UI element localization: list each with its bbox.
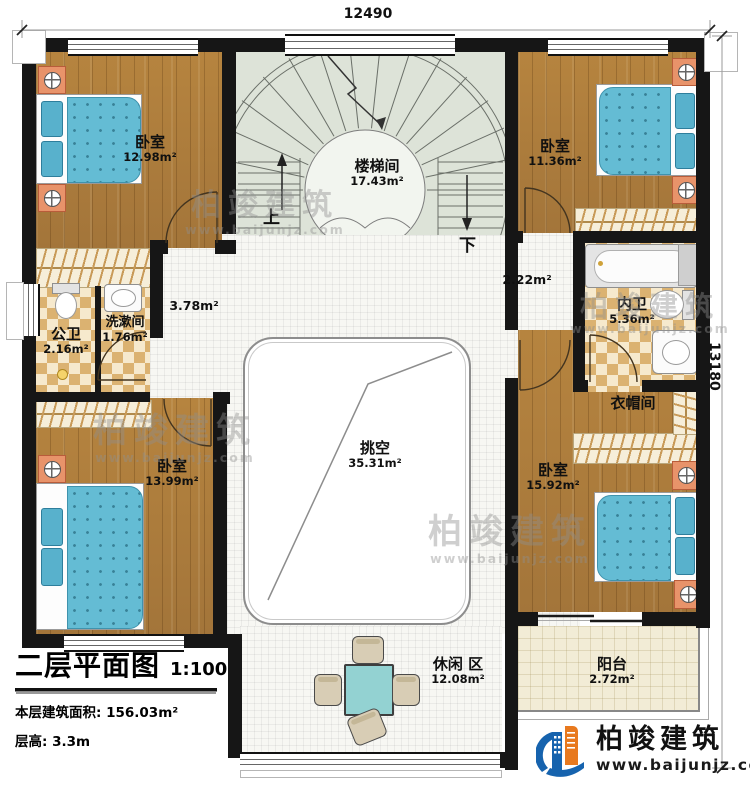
door-arcs — [98, 188, 637, 446]
sliding-door — [538, 616, 644, 621]
floorplan-canvas: 卧室 12.98m² 楼梯间 17.43m² 卧室 11.36m² 公卫 2.1… — [0, 0, 750, 792]
title-block: 二层平面图1:100 本层建筑面积: 156.03m² 层高: 3.3m — [15, 644, 227, 750]
plan-title: 二层平面图 — [15, 649, 160, 682]
dimension-height: 13180 — [706, 342, 722, 391]
plan-scale: 1:100 — [170, 659, 227, 680]
floor-height-text: 层高: 3.3m — [15, 730, 227, 750]
floor-area-text: 本层建筑面积: 156.03m² — [15, 701, 227, 721]
void-diagonal — [268, 352, 452, 600]
title-rule — [15, 688, 217, 692]
stairs-down-label: 下 — [459, 231, 476, 256]
brand-logo: 柏竣建筑 www.baijunjz.com — [536, 722, 750, 778]
brand-website: www.baijunjz.com — [596, 756, 750, 774]
brand-logo-icon — [536, 722, 588, 778]
stairs-up-label: 上 — [263, 203, 280, 228]
dimension-width: 12490 — [318, 6, 418, 22]
brand-name: 柏竣建筑 — [596, 726, 750, 753]
